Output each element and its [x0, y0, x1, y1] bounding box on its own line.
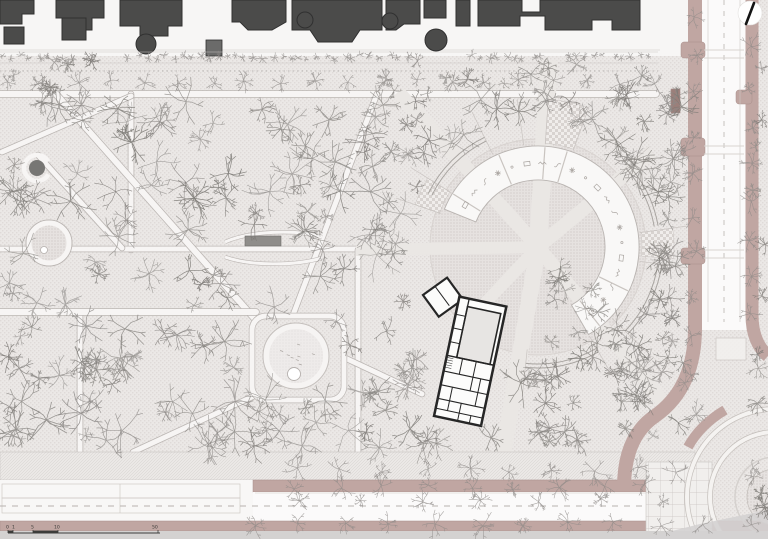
round-tower	[297, 12, 313, 28]
round-tower	[425, 29, 447, 51]
round-tower	[382, 13, 398, 29]
building-footprint	[478, 0, 640, 30]
round-tower	[136, 34, 156, 54]
scale-label: 50	[152, 525, 158, 531]
building-footprint	[424, 0, 446, 18]
site-plan-canvas: 0151050	[0, 0, 768, 539]
sidewalk-band	[253, 480, 703, 492]
scale-label: 10	[54, 525, 60, 531]
building-footprint	[62, 18, 86, 40]
monument-slab	[245, 236, 281, 246]
scale-label: 5	[31, 525, 34, 531]
scale-label: 0	[6, 525, 9, 531]
north-arrow-icon	[738, 1, 762, 25]
site-plan: 0151050	[0, 0, 768, 539]
promenade-band	[0, 452, 695, 480]
dark-disc-feature	[29, 160, 45, 176]
building-footprint	[4, 27, 24, 44]
plot-outline	[716, 338, 746, 360]
round-pool	[29, 223, 69, 263]
building-footprint	[456, 0, 470, 26]
scale-label: 1	[12, 525, 15, 531]
